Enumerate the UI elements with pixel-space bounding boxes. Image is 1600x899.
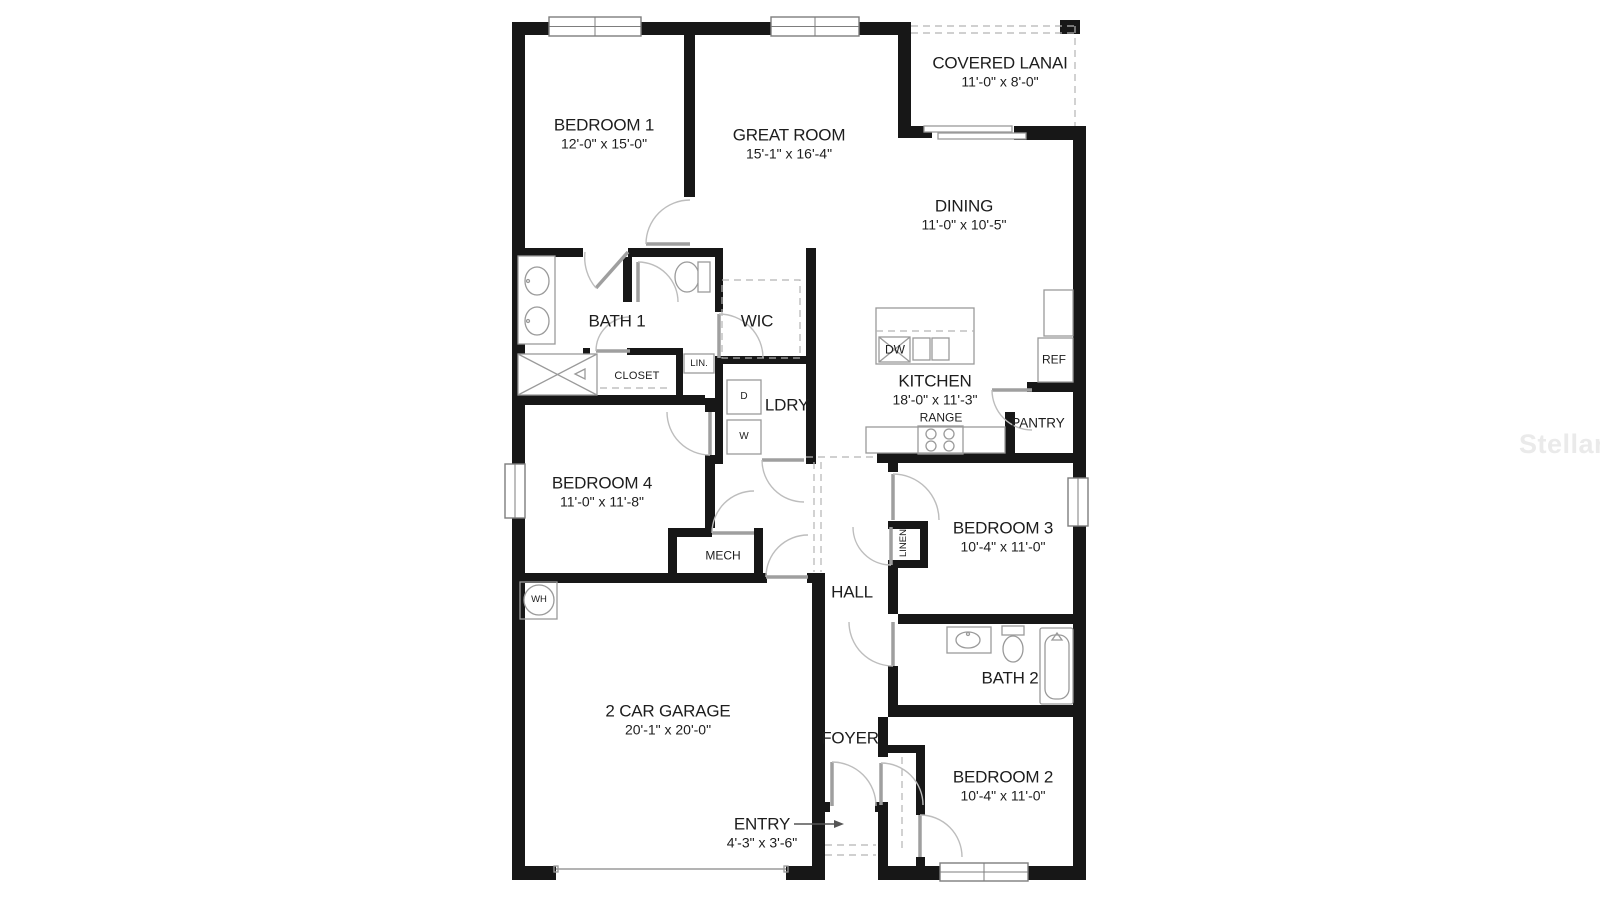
label-wh: WH <box>531 594 547 606</box>
room-label-entry: ENTRY 4'-3" x 3'-6" <box>727 814 798 853</box>
bath2-toilet <box>1002 626 1024 662</box>
label-closet: CLOSET <box>614 370 659 384</box>
door-bath1 <box>585 252 628 288</box>
room-label-ldry: LDRY <box>765 394 809 415</box>
window-bedroom2 <box>940 863 1028 881</box>
range-counter <box>866 426 1005 454</box>
room-label-bath1: BATH 1 <box>588 310 645 331</box>
door-bedroom4 <box>667 412 710 455</box>
door-water-closet <box>638 262 678 302</box>
room-label-dining: DINING 11'-0" x 10'-5" <box>921 196 1006 235</box>
room-label-foyer: FOYER <box>821 727 879 748</box>
room-label-bedroom1: BEDROOM 1 12'-0" x 15'-0" <box>554 115 654 154</box>
lanai-corner-post <box>1060 20 1080 34</box>
room-label-covered-lanai: COVERED LANAI 11'-0" x 8'-0" <box>932 53 1067 92</box>
bath1-toilet <box>675 262 710 292</box>
ref-counter <box>1044 290 1073 336</box>
door-ldry <box>762 460 804 502</box>
window-bedroom4 <box>505 464 525 518</box>
bath1-vanity <box>518 256 555 344</box>
door-bedroom2 <box>920 815 962 857</box>
label-dryer: D <box>740 391 747 404</box>
door-entry <box>832 762 876 806</box>
door-bath2 <box>849 622 893 666</box>
room-label-garage: 2 CAR GARAGE 20'-1" x 20'-0" <box>605 701 730 740</box>
label-ref: REF <box>1042 353 1066 368</box>
door-mech <box>712 491 754 533</box>
room-label-bedroom4: BEDROOM 4 11'-0" x 11'-8" <box>552 473 652 512</box>
garage-door-line <box>554 866 788 872</box>
door-bedroom1 <box>646 200 690 244</box>
sliding-door <box>924 126 1026 139</box>
room-label-hall: HALL <box>831 581 873 602</box>
window-great-room <box>771 17 859 36</box>
bath2-fixtures <box>947 626 1073 704</box>
label-lin: LIN. <box>690 358 707 370</box>
room-label-great-room: GREAT ROOM 15'-1" x 16'-4" <box>733 125 846 164</box>
label-mech: MECH <box>705 549 740 564</box>
label-range: RANGE <box>920 411 963 426</box>
room-label-kitchen: KITCHEN 18'-0" x 11'-3" <box>892 371 977 410</box>
door-linen <box>853 527 891 565</box>
door-bedroom3 <box>893 474 939 520</box>
window-bedroom3 <box>1068 478 1088 526</box>
room-label-wic: WIC <box>741 310 773 331</box>
window-bedroom1 <box>549 17 641 36</box>
room-label-bath2: BATH 2 <box>981 667 1038 688</box>
bath2-vanity <box>947 627 991 653</box>
label-washer: W <box>739 431 748 444</box>
label-dw: DW <box>885 343 905 358</box>
label-pantry: PANTRY <box>1011 416 1065 433</box>
floor-plan-page: { "watermark": { "text": "StellarMLS" },… <box>0 0 1600 899</box>
bath1-shower <box>518 354 597 395</box>
room-label-bedroom2: BEDROOM 2 10'-4" x 11'-0" <box>953 767 1053 806</box>
bath2-tub <box>1040 628 1073 704</box>
stellar-mls-watermark: StellarMLS <box>1519 429 1600 460</box>
door-garage <box>766 535 808 577</box>
room-label-bedroom3: BEDROOM 3 10'-4" x 11'-0" <box>953 518 1053 557</box>
label-linen: LINEN <box>898 529 910 557</box>
